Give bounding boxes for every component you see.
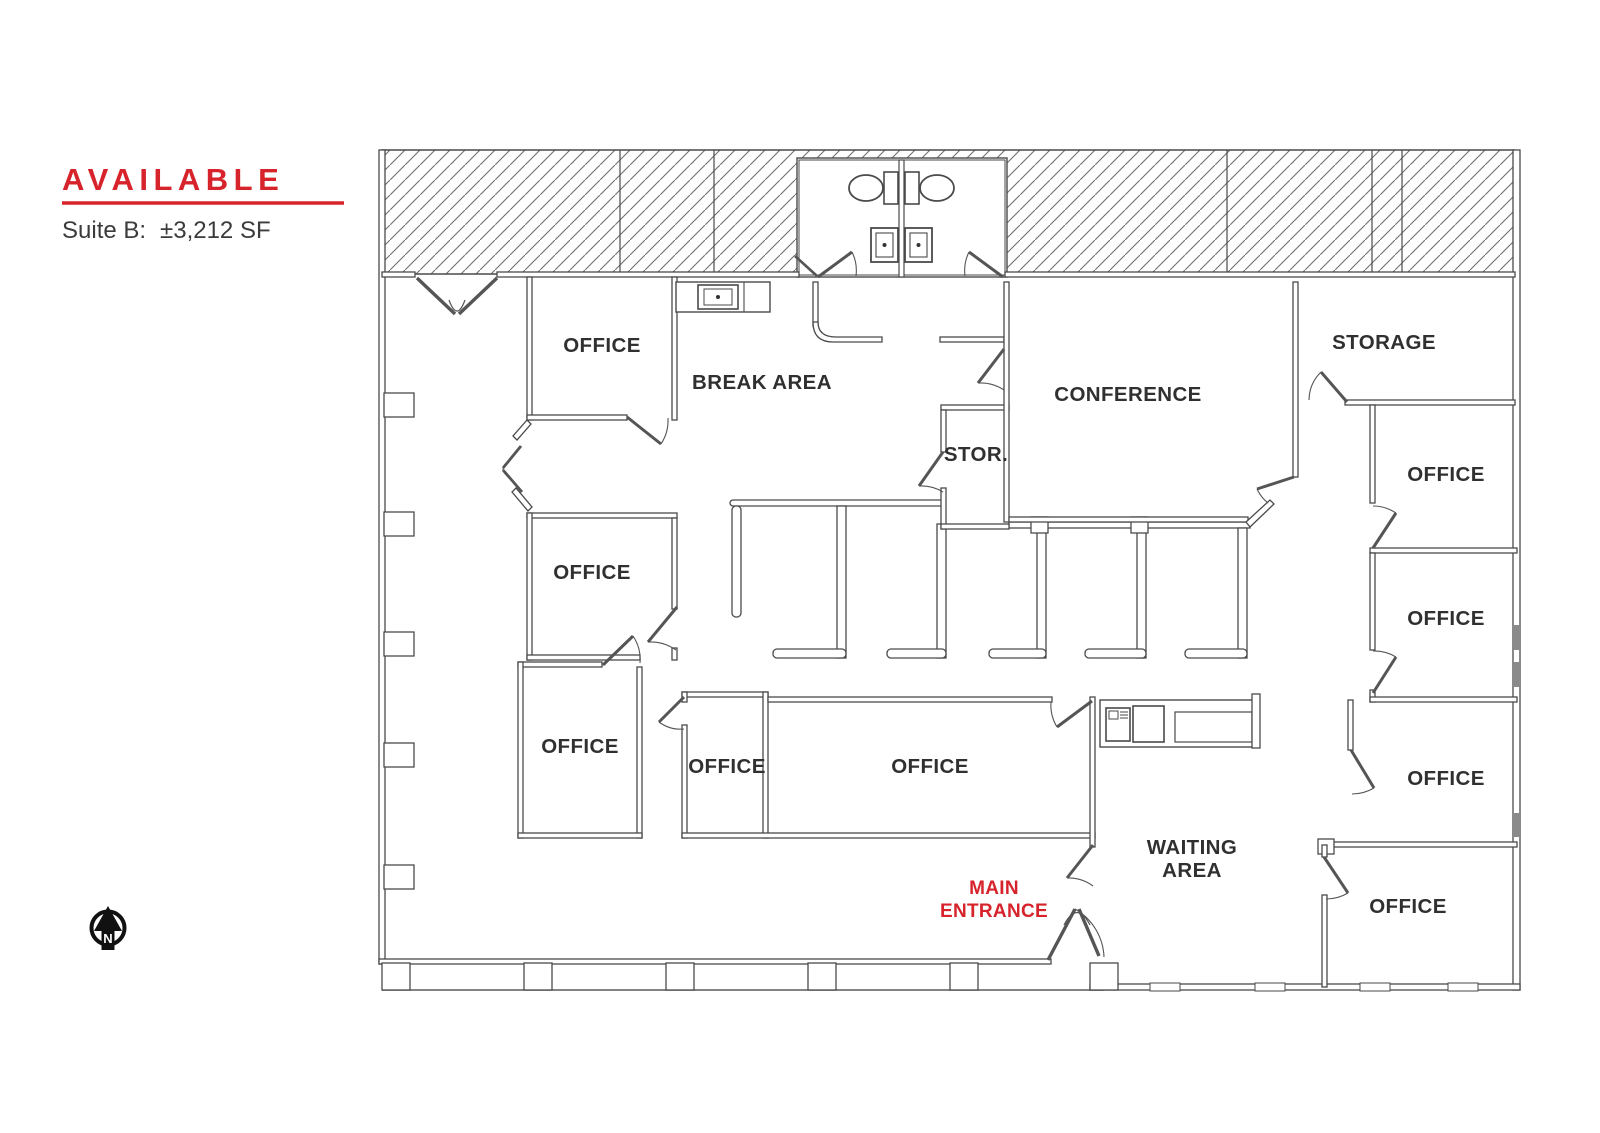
cubicle-partition (1185, 649, 1247, 658)
break-area-counter (676, 282, 770, 312)
pilaster (384, 632, 414, 656)
main-entrance-label-line1: MAIN (969, 878, 1019, 899)
cubicle-partition (1085, 649, 1146, 658)
waiting-area-label-line2: AREA (1162, 859, 1222, 882)
cubicle-partition (989, 649, 1046, 658)
column (808, 963, 836, 990)
restrooms (797, 158, 1007, 277)
room-label-office-right-3: OFFICE (1407, 767, 1485, 790)
suite-info: Suite B:±3,212 SF (62, 217, 271, 244)
available-title: AVAILABLE (62, 162, 284, 197)
room-label-storage: STORAGE (1332, 331, 1436, 354)
sink-right-icon (905, 228, 932, 262)
suite-label: Suite B: (62, 217, 146, 244)
toilet-right-icon (905, 172, 954, 204)
counter-shelf (1175, 712, 1252, 742)
legend: AVAILABLE Suite B:±3,212 SF (62, 162, 344, 244)
north-letter: N (103, 931, 112, 946)
printer-icon (1133, 706, 1164, 742)
column (1090, 963, 1118, 990)
room-label-office-left-middle: OFFICE (553, 561, 631, 584)
main-entrance-label-line2: ENTRANCE (940, 901, 1048, 922)
room-label-office-right-1: OFFICE (1407, 463, 1485, 486)
pilaster (384, 743, 414, 767)
cubicle-partition (730, 500, 943, 506)
sink-icon (698, 285, 738, 309)
room-label-storage-small: STOR. (944, 443, 1008, 466)
waiting-area-label-line1: WAITING (1147, 836, 1238, 859)
suite-size: ±3,212 SF (160, 217, 271, 244)
cubicle-partition (732, 506, 741, 617)
room-label-office-right-2: OFFICE (1407, 607, 1485, 630)
restroom-divider-wall (899, 160, 904, 277)
room-label-break-area: BREAK AREA (692, 371, 832, 394)
column (950, 963, 978, 990)
room-label-office-top-left: OFFICE (563, 334, 641, 357)
room-label-office-bottom-wide: OFFICE (891, 755, 969, 778)
cubicle-partition (937, 524, 946, 658)
cubicle-partition (1037, 528, 1046, 658)
sink-left-icon (871, 228, 898, 262)
room-label-conference: CONFERENCE (1054, 383, 1202, 406)
cubicle-partition (887, 649, 946, 658)
reception-counter (1100, 694, 1260, 748)
doors (417, 252, 1396, 960)
pilaster (384, 865, 414, 889)
column (666, 963, 694, 990)
column (382, 963, 410, 990)
toilet-left-icon (849, 172, 898, 204)
cubicle-partition (773, 649, 846, 658)
pilaster (384, 512, 414, 536)
chamfer-wall (1246, 500, 1274, 527)
cubicle-partition (1238, 528, 1247, 658)
north-arrow-icon: N (92, 906, 125, 950)
room-label-office-bottom-right: OFFICE (1369, 895, 1447, 918)
room-label-office-bottom-small: OFFICE (688, 755, 766, 778)
cubicle-partition (1137, 528, 1146, 658)
room-label-office-left-lower: OFFICE (541, 735, 619, 758)
floor-plan-page: AVAILABLE Suite B:±3,212 SF N (0, 0, 1600, 1133)
floor-plan-drawing: AVAILABLE Suite B:±3,212 SF N (0, 0, 1600, 1133)
pilaster (384, 393, 414, 417)
cubicle-partition (837, 506, 846, 658)
column (524, 963, 552, 990)
